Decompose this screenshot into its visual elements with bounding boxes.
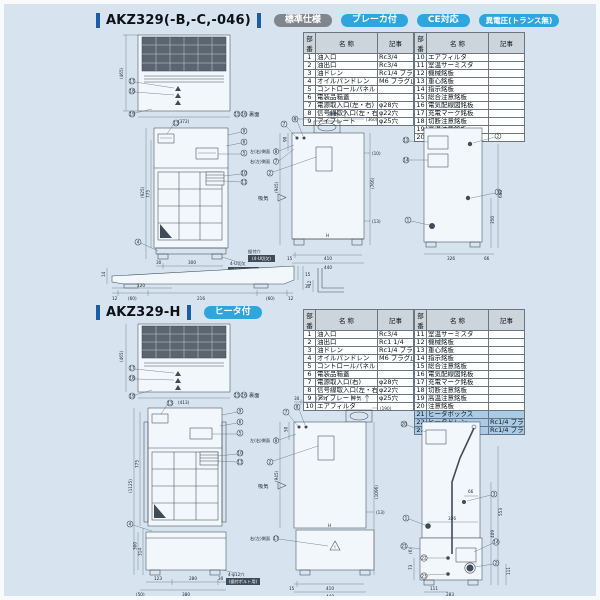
svg-text:5: 5 [239, 431, 242, 436]
s1-side-view-drawing: 排気 (360) 7 8 左(右)側面 8 右(左)側面 7 [248, 107, 406, 277]
col-header-no: 部番 [304, 33, 316, 54]
table-cell: 10 [415, 54, 427, 62]
table-cell: 油出口 [316, 62, 378, 70]
svg-text:7: 7 [285, 410, 288, 415]
svg-text:左(右)側面: 左(右)側面 [250, 437, 270, 444]
table-cell [489, 62, 525, 70]
svg-text:11: 11 [241, 180, 247, 185]
table-cell: 電気配線図銘板 [427, 102, 489, 110]
drain-port [462, 500, 466, 504]
svg-text:吸気: 吸気 [258, 482, 268, 490]
table-row: 16電気配線図銘板 [415, 371, 525, 379]
table-cell: 油出口 [316, 339, 378, 347]
svg-text:右(左)側面: 右(左)側面 [250, 535, 270, 542]
table-row: 3油ドレンRc1/4 プラグ止メ [304, 70, 414, 78]
air-vent-fitting [446, 572, 450, 576]
section1-title: AKZ329(-B,-C,-046) [106, 13, 251, 28]
badge-heater: ヒータ付 [204, 306, 262, 319]
table-cell: 3 [304, 70, 316, 78]
cable-port [305, 426, 308, 429]
svg-text:410: 410 [326, 586, 334, 591]
svg-text:10: 10 [237, 451, 243, 456]
table-cell: 機械銘板 [427, 339, 489, 347]
table-cell: 室温サーミスタ [427, 62, 489, 70]
svg-text:(6): (6) [408, 548, 413, 554]
svg-text:775: 775 [135, 460, 140, 468]
svg-text:4-φ12穴: 4-φ12穴 [228, 571, 245, 578]
table-row: 11室温サーミスタ [415, 331, 525, 339]
svg-text:15: 15 [234, 112, 240, 117]
table-row: 3油ドレンRc1/4 プラグ止メ [304, 347, 414, 355]
svg-text:右(左)側面: 右(左)側面 [250, 158, 270, 165]
unit-outline [294, 422, 366, 528]
svg-text:2: 2 [269, 460, 272, 465]
svg-text:(766): (766) [370, 177, 375, 189]
table-cell [489, 78, 525, 86]
side-rail [144, 422, 148, 522]
svg-text:10: 10 [241, 171, 247, 176]
table-cell: Rc3/4 [378, 331, 414, 339]
table-cell [489, 339, 525, 347]
table-cell: 13 [415, 78, 427, 86]
table-cell: 機械銘板 [427, 70, 489, 78]
svg-text:5: 5 [243, 151, 246, 156]
table-cell [489, 94, 525, 102]
base-pad [124, 284, 138, 288]
table-cell: 電気配線図銘板 [427, 371, 489, 379]
svg-text:111: 111 [506, 567, 511, 575]
s1-top-view-drawing: (465) 17 18 19 [112, 29, 264, 125]
table-cell: 1 [304, 54, 316, 62]
svg-text:16: 16 [241, 112, 247, 117]
svg-text:(465): (465) [119, 350, 124, 362]
fan-cowl [314, 121, 340, 133]
svg-text:90: 90 [283, 136, 288, 142]
table-cell: 1 [304, 331, 316, 339]
table-cell: 指示銘板 [427, 86, 489, 94]
col-header-no: 部番 [415, 33, 427, 54]
svg-text:640: 640 [498, 190, 503, 198]
s2-front-view-drawing: 13 9 6 5 10 11 [100, 398, 258, 600]
badge-voltage: 異電圧(トランス無) [479, 14, 560, 27]
table-row: 14指示銘板 [415, 86, 525, 94]
svg-text:30: 30 [294, 396, 300, 401]
table-cell: M6 プラグ止メ [378, 355, 414, 363]
s2-side-view-drawing: 30 (365) (190) 排気 7 8 左(右)側面 8 [248, 394, 410, 600]
callout-6: 6 [226, 139, 247, 146]
dimension-111-right: 111 [506, 564, 511, 585]
heater-box [420, 538, 482, 580]
s2-rear-view-drawing: 20 3 66 1 326 21 14 2 [394, 406, 540, 600]
callout-9: 9 [222, 408, 243, 415]
svg-text:据付穴: 据付穴 [248, 248, 261, 255]
table-cell: 4 [304, 78, 316, 86]
dimension-right-height: (766) (10) (13) [364, 133, 381, 245]
svg-text:17: 17 [273, 536, 279, 541]
table-header-row: 部番 名 称 記事 [415, 33, 525, 54]
s1-rear-view-drawing: 12 14 2 3 1 640 350 [394, 114, 536, 266]
heater-box [296, 530, 374, 575]
oil-outlet-port [468, 142, 472, 146]
svg-text:410: 410 [324, 256, 332, 261]
table-row: 6電装品箱蓋 [304, 371, 414, 379]
svg-text:775: 775 [146, 190, 151, 198]
table-cell: 5 [304, 86, 316, 94]
table-row: 15総合注意銘板 [415, 363, 525, 371]
heater-box [146, 532, 226, 575]
table-cell: オイルパンドレン [316, 78, 378, 86]
side-face-label-left: 左(右)側面 8 [250, 145, 294, 155]
svg-text:216: 216 [197, 296, 205, 301]
table-cell: 17 [415, 379, 427, 387]
oil-drain-port [466, 196, 470, 200]
svg-text:8: 8 [275, 438, 278, 443]
svg-text:(365): (365) [316, 396, 328, 401]
dimension-bottom: 326 66 [424, 254, 494, 261]
table-cell: 油入口 [316, 54, 378, 62]
svg-text:20: 20 [401, 422, 407, 427]
louver [200, 452, 218, 465]
table-cell [489, 86, 525, 94]
table-row: 19高温注意銘板 [415, 395, 525, 403]
svg-text:2: 2 [495, 561, 498, 566]
heater-drain-fitting [446, 556, 450, 560]
svg-text:3: 3 [493, 492, 496, 497]
dimension-height: (465) [119, 35, 138, 111]
svg-text:66: 66 [468, 489, 474, 494]
title-accent-bar [96, 13, 100, 28]
svg-text:11: 11 [237, 460, 243, 465]
svg-text:314: 314 [138, 548, 143, 556]
table-cell [489, 70, 525, 78]
table-cell: 2 [304, 62, 316, 70]
table-cell: 7 [304, 379, 316, 387]
svg-text:22: 22 [421, 556, 427, 561]
col-header-no: 部番 [415, 310, 427, 331]
svg-text:283: 283 [446, 592, 454, 597]
s1-base-detail-drawing: 14 120 12 (60) 216 (60) 12 15 30 [94, 260, 316, 304]
table-cell: M6 プラグ止メ [378, 78, 414, 86]
svg-text:14: 14 [101, 271, 106, 277]
svg-text:(360): (360) [366, 117, 378, 122]
catalog-page: AKZ329(-B,-C,-046) 標準仕様 ブレーカ付 CE対応 異電圧(ト… [0, 0, 600, 600]
table-cell [378, 94, 414, 102]
svg-text:23: 23 [421, 574, 427, 579]
cable-port [303, 137, 306, 140]
table-cell: Rc1/4 プラグ止メ [378, 70, 414, 78]
table-row: 6電装品箱蓋 [304, 94, 414, 102]
svg-text:18: 18 [129, 376, 135, 381]
table-cell: 電装品箱蓋 [316, 371, 378, 379]
table-cell: 11 [415, 331, 427, 339]
dimension-H: H [328, 523, 331, 528]
oil-inlet-port [425, 523, 431, 529]
exhaust-label: 排気 [351, 394, 369, 402]
table-cell [378, 363, 414, 371]
svg-text:326: 326 [448, 516, 456, 521]
svg-text:21: 21 [401, 544, 407, 549]
table-cell: 6 [304, 94, 316, 102]
oil-outlet-port [467, 565, 474, 572]
s2-top-view-drawing: (465) 17 18 19 [112, 320, 264, 406]
table-cell [489, 347, 525, 355]
table-cell: 15 [415, 94, 427, 102]
svg-text:12: 12 [112, 296, 118, 301]
table-cell: 油入口 [316, 331, 378, 339]
table-cell: オイルパンドレン [316, 355, 378, 363]
table-cell: 16 [415, 102, 427, 110]
table-cell: 高温注意銘板 [427, 395, 489, 403]
section2-header: AKZ329-H ヒータ付 [96, 304, 262, 320]
svg-text:吸気: 吸気 [258, 194, 268, 202]
svg-text:73: 73 [408, 564, 413, 570]
fan-cowl [346, 410, 372, 422]
base-rail-profile [112, 266, 294, 284]
svg-text:(945): (945) [274, 181, 279, 193]
badge-ce: CE対応 [417, 14, 470, 27]
table-cell: 19 [415, 395, 427, 403]
col-header-note: 記事 [489, 33, 525, 54]
svg-text:66: 66 [484, 256, 490, 261]
svg-text:280: 280 [189, 576, 197, 581]
badge-standard-spec: 標準仕様 [274, 14, 332, 27]
table-cell [489, 379, 525, 387]
svg-text:123: 123 [154, 576, 162, 581]
foot [468, 580, 478, 585]
table-row: 2油出口Rc1 1/4 [304, 339, 414, 347]
fan-grille [142, 326, 226, 358]
dimension-12: 12 [307, 280, 313, 292]
table-cell: 重心銘板 [427, 78, 489, 86]
table-cell: 13 [415, 347, 427, 355]
callout-7: 7 [281, 121, 296, 137]
table-cell: コントロールパネル [316, 363, 378, 371]
fan-grille [142, 37, 226, 71]
col-header-note: 記事 [378, 310, 414, 331]
svg-text:16: 16 [241, 393, 247, 398]
louver [206, 172, 224, 185]
col-header-note: 記事 [378, 33, 414, 54]
col-header-name: 名 称 [316, 310, 378, 331]
table-cell: 18 [415, 387, 427, 395]
table-cell: 油ドレン [316, 70, 378, 78]
col-header-name: 名 称 [427, 310, 489, 331]
table-cell: 2 [304, 339, 316, 347]
table-row: 13重心銘板 [415, 347, 525, 355]
table-cell: Rc1 1/4 [378, 339, 414, 347]
table-cell [378, 371, 414, 379]
svg-text:326: 326 [447, 256, 455, 261]
svg-text:18: 18 [129, 89, 135, 94]
svg-text:2: 2 [497, 134, 500, 139]
dimension-height: (465) [119, 324, 126, 392]
table-row: 1油入口Rc3/4 [304, 331, 414, 339]
table-row: 15総合注意銘板 [415, 94, 525, 102]
dimension-left: 73 (6) [408, 548, 414, 580]
foot [470, 242, 480, 247]
table-row: 4オイルパンドレンM6 プラグ止メ [304, 78, 414, 86]
col-header-name: 名 称 [427, 33, 489, 54]
table-cell [489, 395, 525, 403]
svg-text:8: 8 [294, 117, 297, 122]
table-cell: φ28穴 [378, 379, 414, 387]
callout-7: 7 [283, 409, 298, 426]
table-row: 5コントロールパネル [304, 363, 414, 371]
table-cell: 重心銘板 [427, 347, 489, 355]
table-cell: 3 [304, 347, 316, 355]
table-row: 16電気配線図銘板 [415, 102, 525, 110]
svg-text:8: 8 [296, 405, 299, 410]
svg-text:380: 380 [182, 592, 190, 597]
table-cell: 15 [415, 363, 427, 371]
svg-text:1: 1 [405, 516, 408, 521]
svg-text:19: 19 [129, 112, 135, 117]
table-cell: 油ドレン [316, 347, 378, 355]
dimension-409: 409 [490, 482, 495, 585]
svg-text:111: 111 [430, 586, 438, 591]
svg-text:(60): (60) [128, 296, 137, 301]
table-cell: 充電マーク銘板 [427, 379, 489, 387]
svg-text:(50): (50) [136, 592, 145, 597]
dimension-height-inner: 775 [135, 412, 141, 526]
table-row: 7電源取入口(右)φ28穴 [304, 379, 414, 387]
svg-text:(13): (13) [376, 510, 385, 515]
col-header-note: 記事 [489, 310, 525, 331]
table-cell: 16 [415, 371, 427, 379]
svg-text:7: 7 [275, 159, 278, 164]
svg-text:(60): (60) [266, 296, 275, 301]
table-cell: 14 [415, 355, 427, 363]
intake-label: 吸気 [258, 482, 286, 490]
table-cell: Rc3/4 [378, 54, 414, 62]
svg-text:13: 13 [173, 121, 179, 126]
svg-text:12: 12 [403, 138, 409, 143]
svg-text:6: 6 [239, 420, 242, 425]
title-accent-bar [187, 305, 191, 320]
svg-text:排気: 排気 [351, 394, 361, 402]
base-and-feet [156, 248, 226, 259]
svg-text:4: 4 [129, 522, 132, 527]
dimension-640: 640 [498, 144, 503, 248]
table-cell: 14 [415, 86, 427, 94]
table-cell: 総合注意銘板 [427, 363, 489, 371]
svg-text:8: 8 [275, 149, 278, 154]
svg-text:6: 6 [243, 140, 246, 145]
table-cell: 指示銘板 [427, 355, 489, 363]
table-row: 4オイルパンドレンM6 プラグ止メ [304, 355, 414, 363]
table-row: 18切断注意銘板 [415, 387, 525, 395]
table-cell: 6 [304, 371, 316, 379]
table-row: 1油入口Rc3/4 [304, 54, 414, 62]
table-cell: エアフィルタ [427, 54, 489, 62]
svg-text:(945): (945) [274, 470, 279, 482]
dimension-bottom: 111 283 [422, 586, 482, 598]
svg-text:440: 440 [326, 594, 334, 599]
svg-text:(1096): (1096) [374, 485, 379, 499]
svg-text:7: 7 [283, 122, 286, 127]
svg-text:50: 50 [284, 426, 289, 432]
bracket-profile-inner [322, 268, 344, 288]
svg-text:排気: 排気 [328, 110, 338, 118]
table-cell: 11 [415, 62, 427, 70]
svg-text:(10): (10) [372, 151, 381, 156]
table-row: 14指示銘板 [415, 355, 525, 363]
s1-bracket-detail-drawing: 12 [306, 262, 352, 302]
table-cell: 12 [415, 70, 427, 78]
table-cell [489, 371, 525, 379]
svg-text:H: H [326, 233, 329, 238]
svg-text:12: 12 [288, 296, 294, 301]
foot [426, 242, 436, 247]
table-row: 10エアフィルタ [415, 54, 525, 62]
table-cell [489, 355, 525, 363]
unit-outline [148, 408, 222, 526]
col-header-name: 名 称 [316, 33, 378, 54]
dimension-top: 30 (365) (190) [294, 396, 392, 411]
svg-text:14: 14 [403, 158, 409, 163]
svg-text:4: 4 [137, 240, 140, 245]
dimension-bottom: 15 410 440 [289, 581, 366, 599]
table-cell: 5 [304, 363, 316, 371]
svg-text:17: 17 [129, 366, 135, 371]
svg-text:9: 9 [243, 129, 246, 134]
svg-text:13: 13 [167, 401, 173, 406]
dimension-height-inner: 775 [146, 140, 152, 248]
svg-text:30: 30 [218, 576, 224, 581]
svg-text:12: 12 [307, 280, 312, 286]
table-cell: Rc1/4 プラグ止メ [378, 347, 414, 355]
svg-text:15: 15 [234, 393, 240, 398]
svg-text:350: 350 [490, 216, 495, 224]
table-cell: 12 [415, 339, 427, 347]
table-cell: 電源取入口(右) [316, 379, 378, 387]
svg-text:(1125): (1125) [128, 479, 133, 493]
table-row: 2油出口Rc3/4 [304, 62, 414, 70]
table-row: 12機械銘板 [415, 70, 525, 78]
table-cell: 総合注意銘板 [427, 94, 489, 102]
table-cell: 室温サーミスタ [427, 331, 489, 339]
table-row: 17充電マーク銘板 [415, 379, 525, 387]
table-cell [489, 54, 525, 62]
side-rail [222, 422, 226, 522]
dimension-350: 350 [490, 198, 495, 248]
table-cell: コントロールパネル [316, 86, 378, 94]
dimension-row: 12 (60) 216 (60) 12 [112, 290, 294, 301]
col-header-no: 部番 [304, 310, 316, 331]
svg-text:(190): (190) [380, 406, 392, 411]
svg-text:409: 409 [490, 530, 495, 538]
oil-inlet-port [429, 223, 435, 229]
dimension-14: 14 [101, 268, 107, 284]
exhaust-label: 排気 [328, 110, 347, 118]
table-cell [489, 363, 525, 371]
badge-breaker: ブレーカ付 [341, 14, 408, 27]
foot [424, 580, 434, 585]
table-header-row: 部番 名 称 記事 [415, 310, 525, 331]
callout-6: 6 [220, 419, 243, 426]
table-cell [378, 86, 414, 94]
table-cell: Rc3/4 [378, 62, 414, 70]
base-pad [254, 284, 268, 288]
table-cell: 4 [304, 355, 316, 363]
svg-text:左(右)側面: 左(右)側面 [250, 148, 270, 155]
table-cell: 切断注意銘板 [427, 387, 489, 395]
svg-text:(13): (13) [372, 219, 381, 224]
section2-title: AKZ329-H [106, 305, 181, 320]
svg-text:(925): (925) [140, 186, 145, 198]
unit-outline [292, 133, 364, 239]
svg-text:9: 9 [239, 409, 242, 414]
